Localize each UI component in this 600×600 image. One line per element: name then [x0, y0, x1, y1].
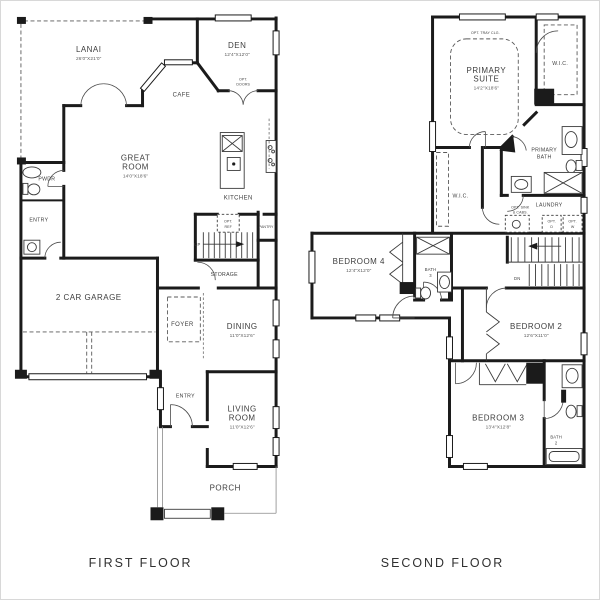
label-laundry: LAUNDRY	[536, 202, 563, 208]
dn-arrow	[528, 243, 537, 250]
first-floor-plan: LANAI 26'0"X21'0" DEN 12'4"X12'0" OPT. D…	[15, 15, 279, 520]
label-primary-bath-2: BATH	[537, 154, 552, 160]
lanai-post	[17, 17, 26, 24]
label-bedroom4: BEDROOM 4	[333, 257, 385, 266]
label-kitchen: KITCHEN	[224, 195, 253, 201]
label-bedroom2-dims: 12'6"X11'0"	[524, 333, 549, 339]
french-door-arc	[81, 84, 104, 106]
bath2-fixtures	[546, 365, 582, 465]
toilet	[566, 405, 576, 418]
garage-markings	[15, 332, 162, 379]
label-opt-d-1: OPT.	[547, 219, 555, 223]
label-opt-doors-2: DOORS	[236, 83, 250, 87]
label-garage: 2 CAR GARAGE	[56, 293, 122, 302]
toilet-tank	[577, 406, 582, 417]
opt-washer-box	[563, 215, 582, 232]
kitchen-island	[220, 119, 276, 189]
label-opt-ref-2: REF	[225, 225, 233, 229]
bedroom2-door-arc	[486, 288, 506, 308]
second-floor-title: SECOND FLOOR	[381, 556, 504, 570]
label-entry-front: ENTRY	[176, 394, 195, 400]
label-opt-doors-1: OPT.	[239, 78, 247, 82]
label-storage: STORAGE	[211, 272, 239, 278]
laundry-fixtures	[505, 215, 582, 232]
foyer-outline	[167, 297, 200, 342]
label-living-1: LIVING	[228, 405, 257, 414]
lanai-area	[17, 17, 153, 165]
wic-door-arc	[536, 31, 558, 53]
opt-doors-arc	[243, 91, 258, 105]
label-opt-sink-2: & CABS.	[513, 210, 528, 214]
label-wic-a: W.I.C.	[552, 61, 568, 67]
suite-door-arc	[469, 132, 485, 148]
label-dn: DN	[514, 276, 520, 281]
label-wic-b: W.I.C.	[453, 193, 469, 199]
first-floor-labels: LANAI 26'0"X21'0" DEN 12'4"X12'0" OPT. D…	[29, 41, 274, 493]
label-bath3-2: 3	[429, 273, 432, 278]
label-primary-bath-1: PRIMARY	[531, 147, 557, 153]
label-opt-sink-1: OPT. SINK	[511, 205, 530, 209]
label-bedroom4-dims: 12'4"X12'0"	[346, 268, 372, 274]
label-foyer: FOYER	[171, 322, 194, 328]
label-bedroom2: BEDROOM 2	[510, 322, 562, 331]
toilet-tank	[576, 160, 582, 170]
label-den: DEN	[228, 41, 246, 50]
toilet-tank	[416, 288, 421, 298]
label-entry-side: ENTRY	[29, 217, 48, 223]
label-living-2: ROOM	[229, 414, 256, 423]
label-porch: PORCH	[210, 483, 241, 492]
label-pantry: PANTRY	[259, 225, 274, 229]
up-arrow	[236, 241, 244, 247]
label-lanai-dims: 26'0"X21'0"	[76, 56, 102, 62]
second-floor-plan: OPT. TRAY CLG. PRIMARY SUITE 14'2"X18'6"…	[309, 14, 587, 469]
label-primary-dims: 14'2"X18'6"	[474, 86, 500, 92]
french-door-arc	[104, 84, 127, 106]
toilet	[566, 160, 576, 173]
label-opt-w-2: W	[571, 225, 575, 229]
chases	[400, 89, 554, 384]
label-bedroom3: BEDROOM 3	[472, 414, 524, 423]
label-opt-ref-1: OPT.	[224, 219, 232, 223]
label-bedroom3-dims: 13'4"X12'8"	[486, 425, 512, 431]
opt-dryer-box	[542, 215, 561, 232]
label-great-room-2: ROOM	[122, 162, 149, 171]
label-bath2-1: BATH	[550, 435, 562, 440]
label-dining-dims: 11'0"X12'6"	[230, 333, 255, 339]
front-door-arc	[170, 405, 192, 427]
porch-post	[151, 507, 164, 520]
label-living-dims: 11'0"X12'6"	[230, 425, 255, 431]
label-opt-d-2: D	[550, 225, 553, 229]
label-opt-w-1: OPT.	[568, 219, 576, 223]
floor-plan-drawing: LANAI 26'0"X21'0" DEN 12'4"X12'0" OPT. D…	[1, 1, 599, 599]
label-pwdr: PWDR	[38, 176, 55, 182]
opt-doors-arc	[228, 91, 243, 105]
bath2-door-arc	[544, 400, 563, 419]
first-floor-title: FIRST FLOOR	[89, 556, 193, 570]
opt-sink-box	[505, 215, 529, 232]
label-opt-tray: OPT. TRAY CLG.	[471, 31, 500, 35]
label-up: UP	[194, 242, 200, 247]
toilet-tank	[23, 183, 28, 194]
label-bath3-1: BATH	[425, 267, 437, 272]
label-dining: DINING	[227, 322, 258, 331]
label-primary-1: PRIMARY	[467, 66, 507, 75]
floor-plan-page: LANAI 26'0"X21'0" DEN 12'4"X12'0" OPT. D…	[0, 0, 600, 600]
porch-post	[211, 507, 224, 520]
garage-door	[29, 374, 147, 380]
label-great-room-dims: 14'0"X18'6"	[123, 173, 149, 179]
toilet	[28, 184, 40, 195]
label-den-dims: 12'4"X12'0"	[225, 52, 251, 58]
label-primary-2: SUITE	[473, 75, 499, 84]
porch-structure	[151, 427, 277, 521]
label-great-room-1: GREAT	[121, 153, 150, 162]
porch-step	[164, 509, 210, 518]
label-bath2-2: 2	[555, 441, 558, 446]
label-cafe: CAFE	[173, 93, 191, 99]
garage-entry-door-arc	[45, 242, 61, 258]
bedroom3-door-arc	[455, 363, 476, 384]
wic2-door-arc	[482, 207, 499, 224]
toilet	[421, 287, 431, 299]
label-lanai: LANAI	[76, 45, 102, 54]
